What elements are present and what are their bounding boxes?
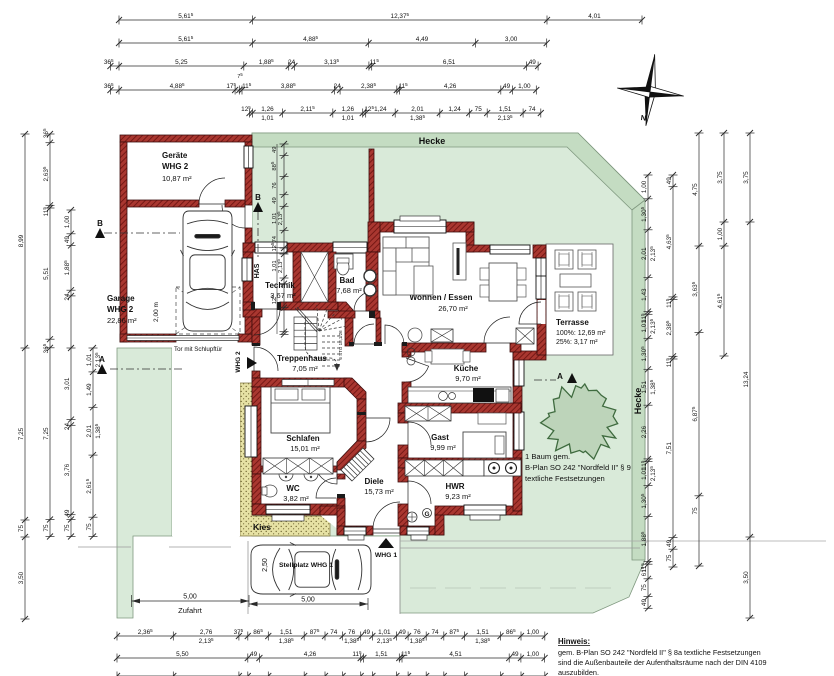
svg-text:Hecke: Hecke [419,136,446,146]
svg-text:1,00: 1,00 [641,180,648,193]
svg-text:49: 49 [666,177,673,185]
svg-text:B-Plan SO 242 "Nordfeld II" §: B-Plan SO 242 "Nordfeld II" § 9 [525,463,631,472]
svg-text:1,01: 1,01 [641,320,648,333]
svg-text:1,49: 1,49 [86,383,93,396]
svg-text:75: 75 [64,524,71,532]
svg-text:Treppenhaus: Treppenhaus [277,354,327,363]
svg-text:3,82 m²: 3,82 m² [283,494,309,503]
svg-text:5,00: 5,00 [183,594,197,601]
svg-text:8,99: 8,99 [18,234,25,247]
svg-text:HAS: HAS [254,263,261,278]
svg-text:49: 49 [503,83,511,90]
svg-text:Gast: Gast [431,433,449,442]
svg-text:Hinweis:: Hinweis: [558,637,590,646]
svg-text:HWR: HWR [445,482,464,491]
svg-text:1,51: 1,51 [375,651,388,658]
svg-text:2,01: 2,01 [641,247,648,260]
svg-text:4,49: 4,49 [416,36,429,43]
svg-text:24: 24 [64,423,71,431]
svg-text:N: N [640,113,646,123]
svg-text:Bad: Bad [339,276,354,285]
svg-text:1,51: 1,51 [641,381,648,394]
svg-text:74: 74 [272,235,278,242]
svg-text:4,26: 4,26 [444,83,457,90]
svg-text:2,50: 2,50 [262,558,269,572]
svg-text:4,01: 4,01 [588,13,601,20]
svg-text:1,00: 1,00 [527,651,540,658]
svg-text:1,00: 1,00 [527,629,540,636]
svg-text:9,23 m²: 9,23 m² [445,492,471,501]
svg-text:22,86 m²: 22,86 m² [107,316,137,325]
svg-text:Geräte: Geräte [162,151,188,160]
svg-text:3,75: 3,75 [717,171,724,184]
svg-text:1,26: 1,26 [261,106,274,113]
svg-text:1,24: 1,24 [448,106,461,113]
svg-text:1,43: 1,43 [641,288,648,301]
svg-text:2,01: 2,01 [86,425,93,438]
svg-text:9,70 m²: 9,70 m² [455,374,481,383]
svg-text:1,51: 1,51 [476,629,489,636]
svg-text:Kies: Kies [253,522,271,532]
svg-text:76: 76 [348,629,356,636]
svg-text:WHG 2: WHG 2 [162,162,189,171]
svg-text:2,01: 2,01 [411,106,424,113]
svg-text:Tor mit Schlupftür: Tor mit Schlupftür [174,346,222,353]
svg-text:49: 49 [399,629,407,636]
svg-text:4,26: 4,26 [304,651,317,658]
svg-text:49: 49 [363,629,371,636]
svg-text:1,00: 1,00 [518,83,531,90]
svg-text:3,50: 3,50 [743,571,750,584]
svg-text:74: 74 [528,106,536,113]
svg-text:1,00: 1,00 [717,227,724,240]
svg-text:WC: WC [286,484,300,493]
svg-text:75: 75 [43,524,50,532]
svg-text:B: B [97,219,103,228]
svg-text:1,01: 1,01 [342,115,355,122]
svg-text:Küche: Küche [454,364,479,373]
svg-text:WHG 1: WHG 1 [375,552,397,559]
svg-text:49: 49 [272,197,278,203]
svg-text:4,51: 4,51 [449,651,462,658]
svg-text:76: 76 [414,629,422,636]
svg-text:Terrasse: Terrasse [556,318,589,327]
svg-text:Diele: Diele [364,477,384,486]
svg-text:1,26: 1,26 [342,106,355,113]
svg-text:1,01: 1,01 [86,353,93,366]
svg-text:B: B [255,193,261,202]
svg-text:WHG 2: WHG 2 [107,305,134,314]
svg-text:49: 49 [666,539,673,547]
svg-text:2,76: 2,76 [200,629,213,636]
svg-text:3,76: 3,76 [64,463,71,476]
svg-text:13,24: 13,24 [743,371,750,387]
svg-text:auszubilden.: auszubilden. [558,668,599,676]
svg-text:6 STG 18,1/26: 6 STG 18,1/26 [338,330,343,360]
svg-text:75: 75 [86,523,93,531]
svg-text:3,50: 3,50 [18,571,25,584]
svg-text:Garage: Garage [107,294,135,303]
svg-text:1,24: 1,24 [374,106,387,113]
svg-text:24: 24 [64,293,71,301]
svg-text:75: 75 [475,106,483,113]
svg-text:9,99 m²: 9,99 m² [430,443,456,452]
svg-text:10,87 m²: 10,87 m² [162,174,192,183]
svg-text:Technik: Technik [265,281,295,290]
svg-text:49: 49 [64,236,71,244]
svg-text:49: 49 [272,147,278,153]
svg-text:74: 74 [431,629,439,636]
svg-text:2,26: 2,26 [641,425,648,438]
svg-text:1,01: 1,01 [261,115,274,122]
svg-text:4,75: 4,75 [692,183,699,196]
svg-text:49: 49 [64,509,71,517]
svg-text:5,00: 5,00 [301,597,315,604]
svg-text:75: 75 [666,554,673,562]
svg-text:26,70 m²: 26,70 m² [438,304,468,313]
svg-text:1,51: 1,51 [280,629,293,636]
svg-text:3,01: 3,01 [64,377,71,390]
svg-text:1,01: 1,01 [641,467,648,480]
svg-text:1,01: 1,01 [378,629,391,636]
svg-text:sind die Außenbauteile der Auf: sind die Außenbauteile der Aufenthaltsrä… [558,658,767,667]
svg-text:Stellplatz WHG 1: Stellplatz WHG 1 [279,562,333,569]
svg-text:75: 75 [641,584,648,592]
svg-text:49: 49 [529,59,537,66]
svg-text:1 Baum gem.: 1 Baum gem. [525,452,570,461]
svg-text:5,51: 5,51 [43,267,50,280]
svg-text:6,51: 6,51 [443,59,456,66]
svg-text:76: 76 [272,182,278,188]
svg-text:3,75: 3,75 [743,171,750,184]
svg-text:gem. B-Plan SO 242 "Nordfeld I: gem. B-Plan SO 242 "Nordfeld II" § 8a te… [558,648,761,657]
svg-text:2,00 m: 2,00 m [153,302,160,322]
svg-text:5,50: 5,50 [176,651,189,658]
svg-text:24: 24 [334,83,342,90]
svg-text:49: 49 [250,651,258,658]
svg-text:7,25: 7,25 [18,427,25,440]
svg-text:textliche Festsetzungen: textliche Festsetzungen [525,474,605,483]
svg-text:3,00: 3,00 [505,36,518,43]
svg-text:5,25: 5,25 [175,59,188,66]
svg-text:75: 75 [692,507,699,515]
svg-text:7,51: 7,51 [666,442,673,455]
svg-text:100%: 12,69 m²: 100%: 12,69 m² [556,330,606,337]
svg-text:1,00: 1,00 [64,215,71,228]
svg-text:WHG 2: WHG 2 [235,351,242,373]
svg-text:G: G [424,511,429,518]
svg-text:7,25: 7,25 [43,427,50,440]
svg-text:A: A [557,372,563,381]
svg-text:24: 24 [288,59,296,66]
svg-text:25%: 3,17 m²: 25%: 3,17 m² [556,339,598,346]
svg-text:7,68 m²: 7,68 m² [336,286,362,295]
svg-text:Zufahrt: Zufahrt [178,606,203,615]
svg-text:49: 49 [511,651,519,658]
svg-text:15,73 m²: 15,73 m² [364,487,394,496]
svg-text:1,51: 1,51 [499,106,512,113]
svg-text:75: 75 [18,525,25,533]
svg-text:7,05 m²: 7,05 m² [292,364,318,373]
svg-text:49: 49 [641,599,648,607]
svg-text:Schlafen: Schlafen [286,434,319,443]
svg-text:74: 74 [330,629,338,636]
svg-text:15,01 m²: 15,01 m² [290,444,320,453]
